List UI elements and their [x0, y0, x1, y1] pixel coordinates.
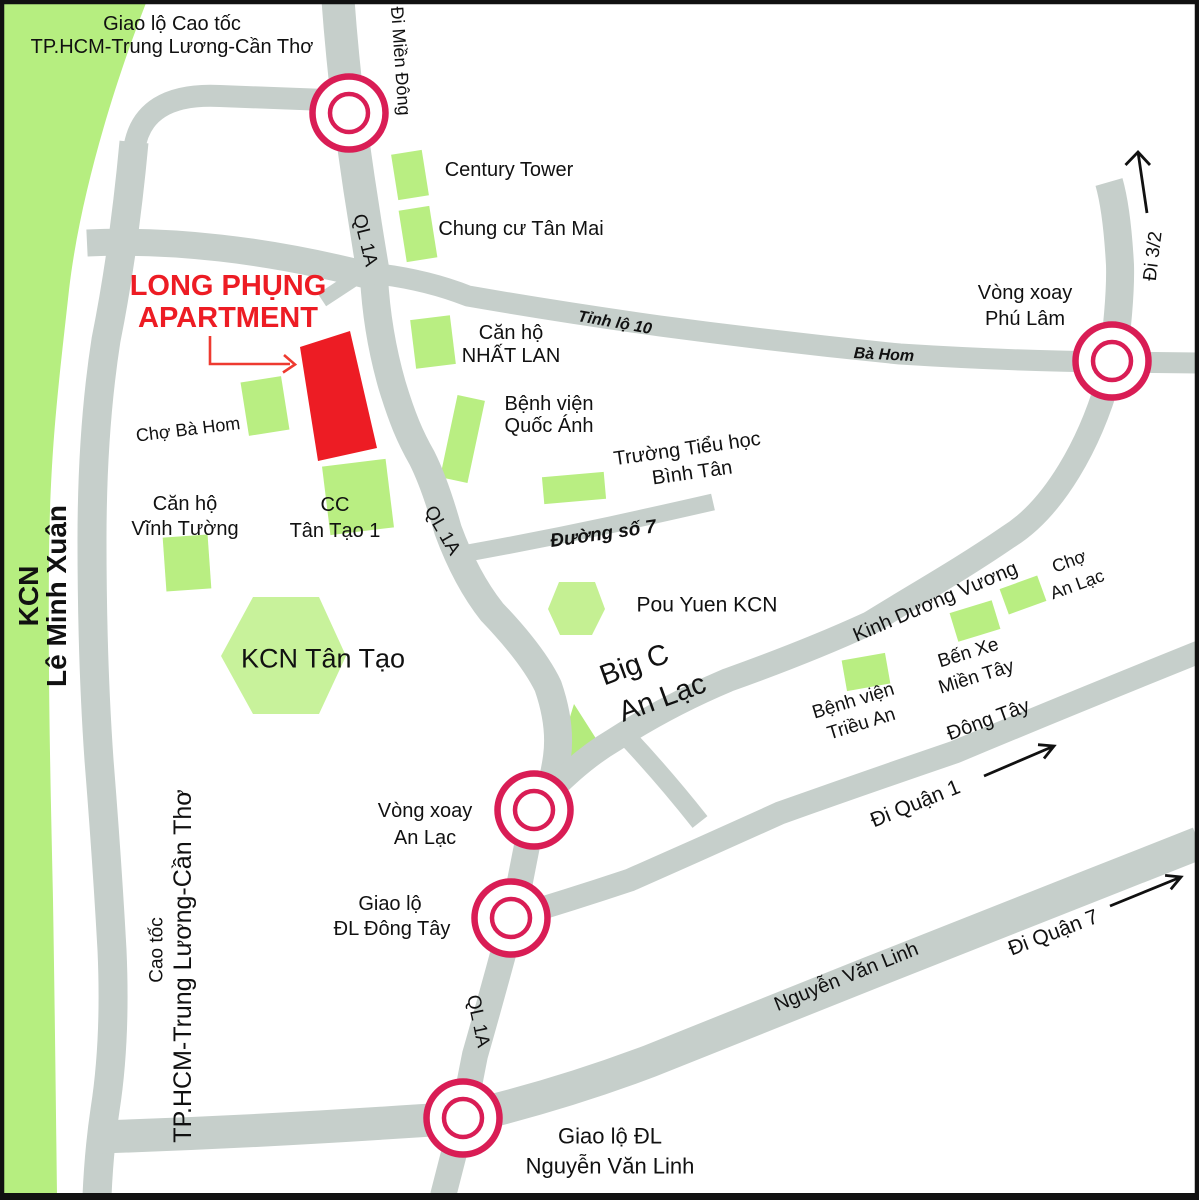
svg-text:APARTMENT: APARTMENT: [138, 302, 318, 334]
svg-text:Tân Tạo 1: Tân Tạo 1: [290, 520, 381, 542]
svg-text:Căn hộ: Căn hộ: [153, 493, 218, 515]
svg-text:Giao lộ Cao tốc: Giao lộ Cao tốc: [103, 13, 241, 35]
svg-text:Vòng xoay: Vòng xoay: [978, 282, 1073, 304]
svg-text:An Lạc: An Lạc: [394, 827, 456, 849]
svg-text:NHẤT LAN: NHẤT LAN: [462, 344, 561, 367]
svg-text:Lê Minh Xuân: Lê Minh Xuân: [41, 505, 72, 687]
svg-text:Vòng xoay: Vòng xoay: [378, 800, 473, 822]
svg-text:Bệnh viện: Bệnh viện: [505, 393, 594, 415]
svg-text:TP.HCM-Trung Lương-Cần Thơ: TP.HCM-Trung Lương-Cần Thơ: [169, 789, 197, 1142]
svg-text:CC: CC: [321, 494, 350, 516]
svg-text:Giao lộ: Giao lộ: [358, 893, 421, 915]
svg-text:Nguyễn Văn Linh: Nguyễn Văn Linh: [526, 1154, 695, 1179]
svg-text:Pou Yuen KCN: Pou Yuen KCN: [637, 593, 778, 616]
svg-text:Phú Lâm: Phú Lâm: [985, 308, 1065, 330]
svg-text:KCN: KCN: [13, 566, 44, 627]
svg-text:Bà Hom: Bà Hom: [853, 345, 914, 365]
svg-text:Cao tốc: Cao tốc: [147, 917, 168, 982]
svg-text:LONG PHỤNG: LONG PHỤNG: [130, 270, 327, 302]
svg-text:Căn hộ: Căn hộ: [479, 322, 544, 344]
svg-text:TP.HCM-Trung Lương-Cần Thơ: TP.HCM-Trung Lương-Cần Thơ: [31, 36, 314, 58]
svg-text:Giao lộ ĐL: Giao lộ ĐL: [558, 1124, 662, 1149]
svg-text:KCN Tân Tạo: KCN Tân Tạo: [241, 643, 405, 673]
svg-text:ĐL Đông Tây: ĐL Đông Tây: [334, 918, 451, 940]
svg-text:Chung cư Tân Mai: Chung cư Tân Mai: [438, 218, 603, 240]
svg-text:Vĩnh Tường: Vĩnh Tường: [131, 518, 238, 540]
svg-text:Century Tower: Century Tower: [445, 159, 574, 181]
svg-text:Quốc Ánh: Quốc Ánh: [505, 414, 594, 437]
